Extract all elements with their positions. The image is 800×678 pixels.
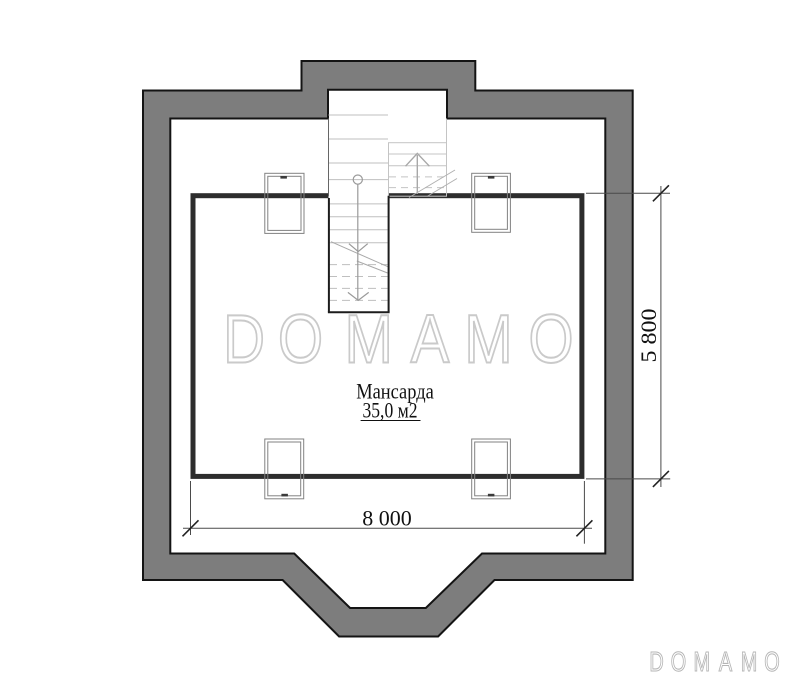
svg-text:M: M [694,647,711,678]
svg-text:M: M [464,300,512,378]
svg-text:O: O [764,647,779,678]
svg-text:M: M [741,647,758,678]
svg-text:35,0 м2: 35,0 м2 [363,398,418,423]
svg-text:O: O [278,300,323,378]
svg-text:D: D [649,647,663,678]
svg-text:5 800: 5 800 [636,309,661,363]
svg-text:A: A [411,300,450,378]
svg-text:A: A [719,647,732,678]
svg-text:8 000: 8 000 [362,505,412,530]
svg-text:O: O [671,647,686,678]
svg-text:O: O [528,300,573,378]
svg-text:D: D [223,300,265,378]
